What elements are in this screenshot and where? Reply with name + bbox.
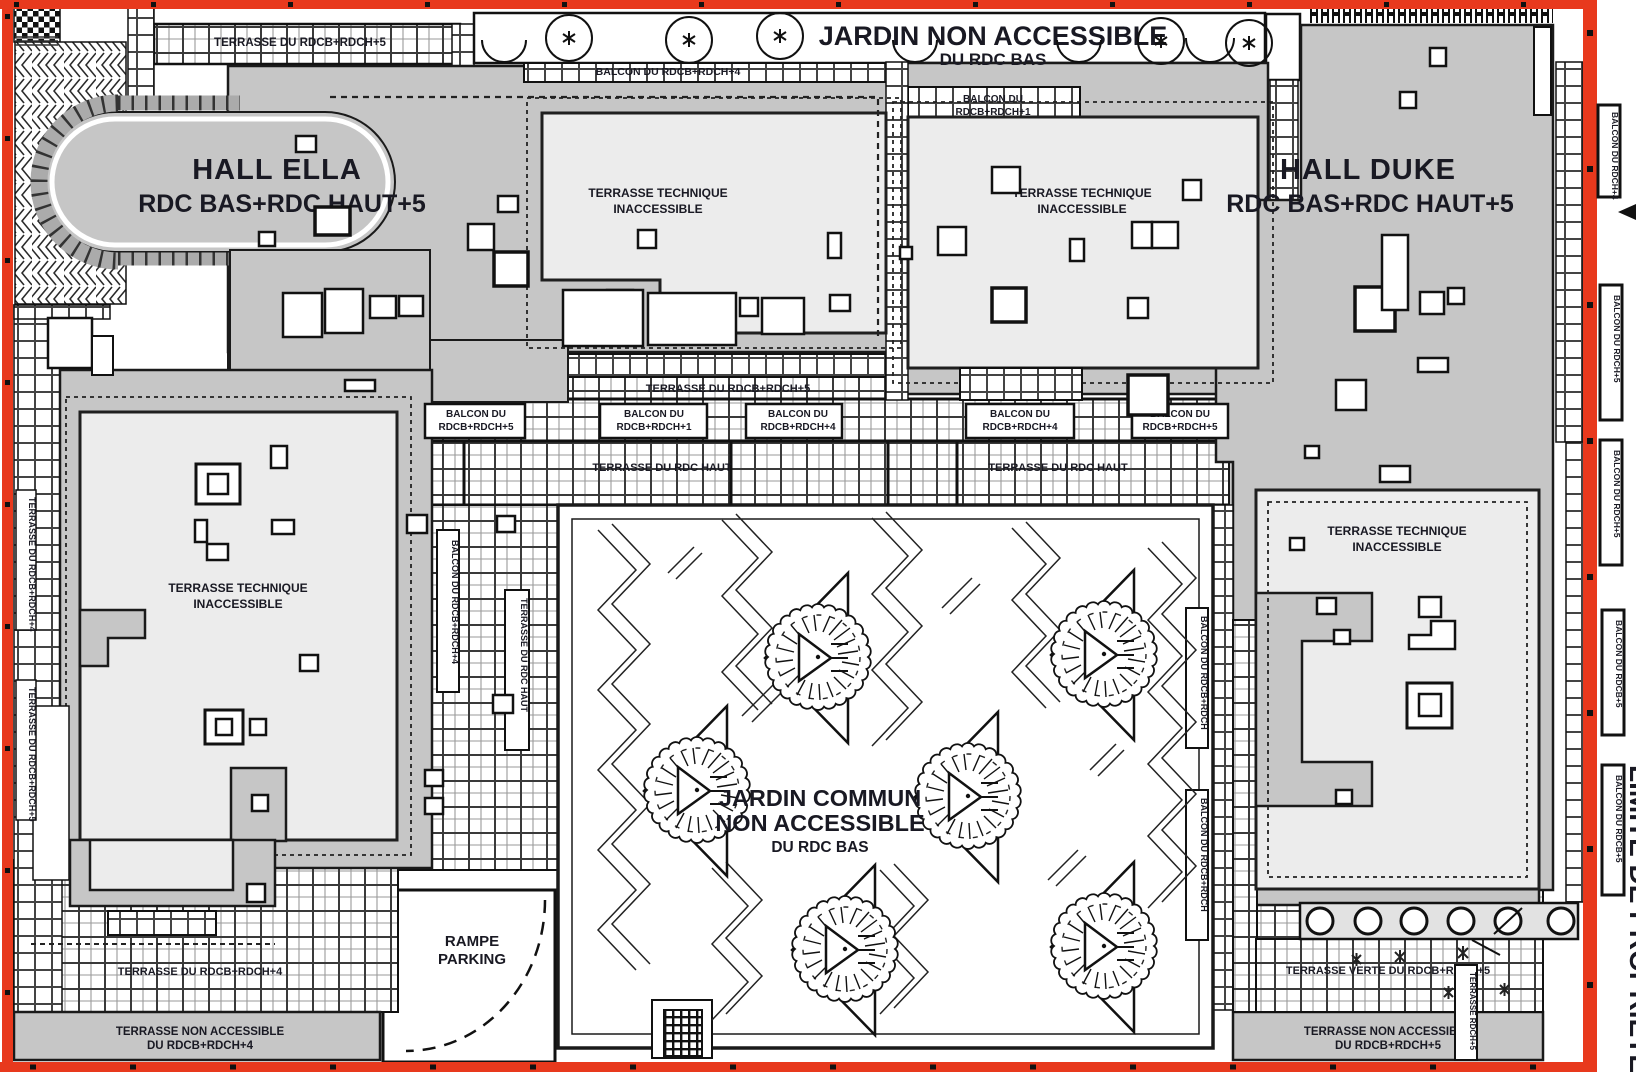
svg-text:TERRASSE DU RDCB+RDCH+5: TERRASSE DU RDCB+RDCH+5 bbox=[214, 37, 386, 49]
svg-text:BALCON DU RDCB+RDCH: BALCON DU RDCB+RDCH bbox=[1199, 798, 1209, 912]
svg-text:TERRASSE NON ACCESSIBLE: TERRASSE NON ACCESSIBLE bbox=[1304, 1026, 1473, 1038]
svg-text:RDCB+RDCH+5: RDCB+RDCH+5 bbox=[1142, 422, 1217, 433]
svg-text:BALCON DU: BALCON DU bbox=[768, 409, 828, 420]
svg-text:INACCESSIBLE: INACCESSIBLE bbox=[1352, 540, 1441, 554]
svg-text:TERRASSE DU RDCB+RDCH+5: TERRASSE DU RDCB+RDCH+5 bbox=[646, 383, 810, 395]
svg-text:TERRASSE TECHNIQUE: TERRASSE TECHNIQUE bbox=[588, 186, 727, 200]
svg-text:RDCB+RDCH+1: RDCB+RDCH+1 bbox=[616, 422, 691, 433]
svg-text:TERRASSE TECHNIQUE: TERRASSE TECHNIQUE bbox=[168, 581, 307, 595]
svg-text:DU RDC BAS: DU RDC BAS bbox=[771, 839, 868, 856]
svg-text:TERRASSE DU RDC HAUT: TERRASSE DU RDC HAUT bbox=[592, 462, 732, 474]
svg-text:RDCB+RDCH+4: RDCB+RDCH+4 bbox=[982, 422, 1057, 433]
svg-text:JARDIN NON ACCESSIBLE: JARDIN NON ACCESSIBLE bbox=[819, 21, 1168, 51]
svg-text:LIMITE DE PROPRIETE: LIMITE DE PROPRIETE bbox=[1624, 765, 1636, 1073]
svg-text:RDCB+RDCH+1: RDCB+RDCH+1 bbox=[955, 107, 1030, 118]
svg-text:BALCON DU: BALCON DU bbox=[963, 94, 1023, 105]
svg-text:TERRASSE TECHNIQUE: TERRASSE TECHNIQUE bbox=[1327, 524, 1466, 538]
svg-text:BALCON DU RDCH+5: BALCON DU RDCH+5 bbox=[1612, 295, 1622, 383]
svg-text:BALCON DU RDCH+5: BALCON DU RDCH+5 bbox=[1612, 450, 1622, 538]
svg-text:TERRASSE RDCH+5: TERRASSE RDCH+5 bbox=[1468, 972, 1477, 1051]
svg-text:DU RDC BAS: DU RDC BAS bbox=[940, 50, 1047, 69]
svg-text:BALCON DU RDCH+4: BALCON DU RDCH+4 bbox=[1610, 112, 1620, 200]
svg-text:BALCON DU: BALCON DU bbox=[446, 409, 506, 420]
svg-text:HALL DUKE: HALL DUKE bbox=[1280, 154, 1456, 186]
svg-text:RAMPE: RAMPE bbox=[445, 933, 499, 950]
svg-text:TERRASSE DU RDCB+RDCH+4: TERRASSE DU RDCB+RDCH+4 bbox=[27, 497, 37, 632]
svg-text:HALL ELLA: HALL ELLA bbox=[192, 154, 362, 186]
svg-text:TERRASSE DU RDC HAUT: TERRASSE DU RDC HAUT bbox=[988, 462, 1128, 474]
svg-text:DU RDCB+RDCH+4: DU RDCB+RDCH+4 bbox=[147, 1040, 254, 1052]
svg-text:RDCB+RDCH+5: RDCB+RDCH+5 bbox=[438, 422, 513, 433]
svg-text:RDC BAS+RDC HAUT+5: RDC BAS+RDC HAUT+5 bbox=[138, 190, 426, 218]
svg-text:BALCON DU RDCB+RDCH: BALCON DU RDCB+RDCH bbox=[1199, 616, 1209, 730]
svg-text:INACCESSIBLE: INACCESSIBLE bbox=[193, 597, 282, 611]
svg-text:BALCON DU RDCB+RDCH+4: BALCON DU RDCB+RDCH+4 bbox=[450, 540, 460, 664]
svg-text:TERRASSE DU RDCB+RDCH+4: TERRASSE DU RDCB+RDCH+4 bbox=[118, 966, 283, 978]
svg-text:INACCESSIBLE: INACCESSIBLE bbox=[613, 202, 702, 216]
svg-text:BALCON DU RDCB+5: BALCON DU RDCB+5 bbox=[1614, 775, 1624, 863]
svg-text:TERRASSE DU RDCB+RDCH+5: TERRASSE DU RDCB+RDCH+5 bbox=[27, 687, 37, 822]
svg-text:BALCON DU: BALCON DU bbox=[990, 409, 1050, 420]
svg-text:TERRASSE TECHNIQUE: TERRASSE TECHNIQUE bbox=[1012, 186, 1151, 200]
svg-text:BALCON DU: BALCON DU bbox=[624, 409, 684, 420]
svg-text:RDCB+RDCH+4: RDCB+RDCH+4 bbox=[760, 422, 835, 433]
svg-text:INACCESSIBLE: INACCESSIBLE bbox=[1037, 202, 1126, 216]
svg-text:TERRASSE NON ACCESSIBLE: TERRASSE NON ACCESSIBLE bbox=[116, 1026, 285, 1038]
svg-text:JARDIN COMMUN: JARDIN COMMUN bbox=[719, 785, 921, 811]
svg-text:NON ACCESSIBLE: NON ACCESSIBLE bbox=[715, 810, 924, 836]
svg-text:TERRASSE DU RDC HAUT: TERRASSE DU RDC HAUT bbox=[519, 598, 529, 713]
svg-text:PARKING: PARKING bbox=[438, 951, 506, 968]
svg-text:BALCON DU RDCB+5: BALCON DU RDCB+5 bbox=[1614, 620, 1624, 708]
svg-text:RDC BAS+RDC HAUT+5: RDC BAS+RDC HAUT+5 bbox=[1226, 190, 1514, 218]
svg-text:DU RDCB+RDCH+5: DU RDCB+RDCH+5 bbox=[1335, 1040, 1442, 1052]
svg-text:BALCON DU RDCB+RDCH+4: BALCON DU RDCB+RDCH+4 bbox=[596, 66, 741, 78]
